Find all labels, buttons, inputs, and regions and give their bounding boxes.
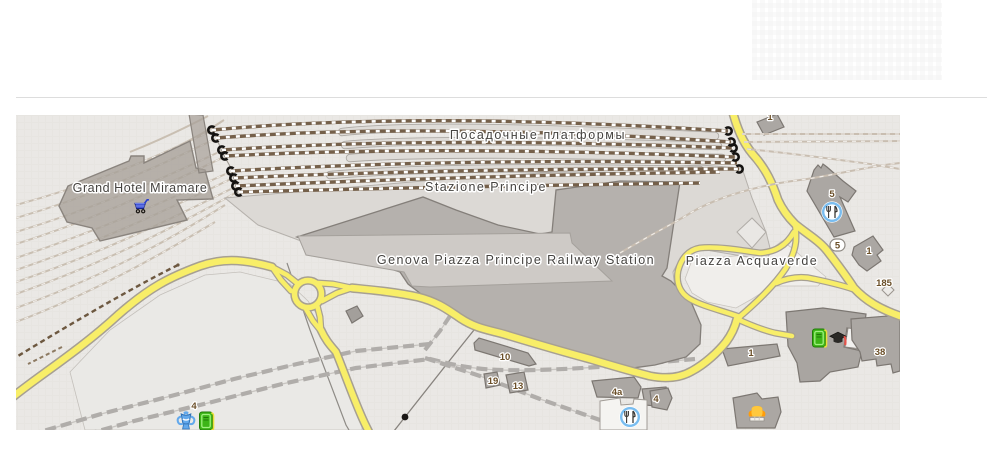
svg-text:19: 19 xyxy=(488,376,499,387)
svg-text:Grand Hotel Miramare: Grand Hotel Miramare xyxy=(73,181,208,195)
svg-text:1: 1 xyxy=(748,348,754,359)
svg-text:Genova Piazza Principe Railway: Genova Piazza Principe Railway Station xyxy=(377,253,655,267)
svg-text:38: 38 xyxy=(875,347,886,358)
svg-text:185: 185 xyxy=(876,278,893,289)
svg-text:10: 10 xyxy=(500,352,511,363)
svg-text:Stazione Principe: Stazione Principe xyxy=(425,180,547,194)
svg-text:1: 1 xyxy=(767,115,773,123)
svg-text:13: 13 xyxy=(513,381,524,392)
svg-text:4: 4 xyxy=(653,394,659,405)
svg-text:1: 1 xyxy=(866,246,872,257)
svg-text:5: 5 xyxy=(829,189,835,200)
svg-text:4: 4 xyxy=(191,401,197,412)
svg-text:5: 5 xyxy=(835,241,841,252)
svg-text:Посадочные платформы: Посадочные платформы xyxy=(450,128,626,142)
svg-text:Piazza Acquaverde: Piazza Acquaverde xyxy=(686,254,819,268)
svg-text:4a: 4a xyxy=(612,387,623,398)
